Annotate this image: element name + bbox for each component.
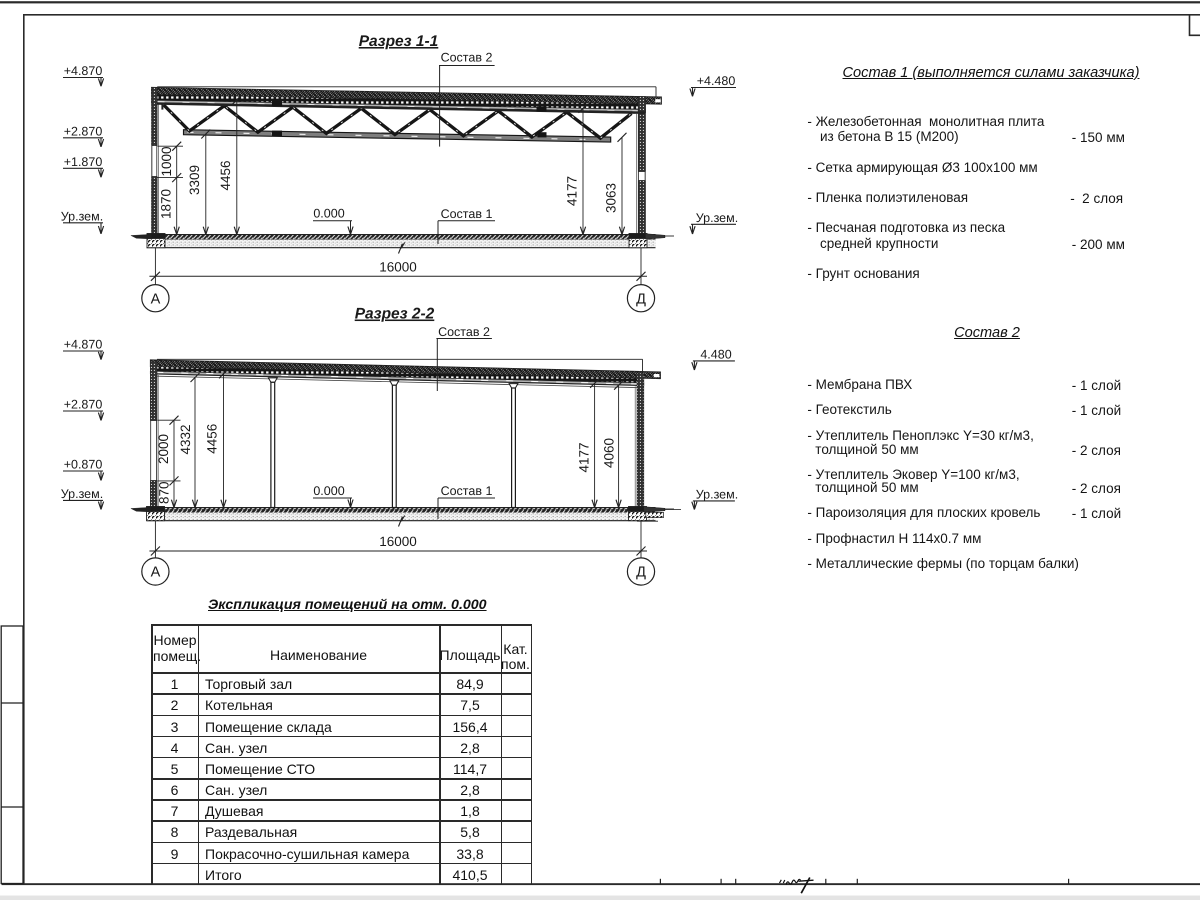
svg-text:16000: 16000 [379, 534, 417, 549]
svg-text:Состав 1: Состав 1 [441, 207, 493, 221]
svg-text:4332: 4332 [178, 424, 193, 454]
svg-text:Д: Д [636, 565, 646, 581]
svg-text:4456: 4456 [218, 160, 233, 190]
svg-text:Ур.зем.: Ур.зем. [696, 211, 738, 225]
svg-text:Ур.зем.: Ур.зем. [61, 209, 103, 223]
svg-text:Ур.зем.: Ур.зем. [696, 487, 738, 501]
svg-text:4177: 4177 [577, 442, 592, 472]
svg-text:Ур.зем.: Ур.зем. [61, 487, 103, 501]
svg-text:А: А [151, 565, 161, 581]
svg-text:+4.870: +4.870 [64, 64, 103, 78]
svg-text:Состав 2: Состав 2 [441, 51, 493, 65]
svg-text:4.480: 4.480 [700, 347, 731, 361]
svg-text:Разрез 1-1: Разрез 1-1 [359, 33, 439, 50]
svg-text:1870: 1870 [158, 189, 173, 219]
svg-text:+0.870: +0.870 [64, 458, 103, 472]
svg-text:2000: 2000 [156, 434, 171, 464]
svg-text:Состав 2: Состав 2 [438, 325, 490, 339]
svg-text:3063: 3063 [603, 183, 618, 213]
svg-text:Разрез 2-2: Разрез 2-2 [355, 306, 435, 323]
svg-text:+1.870: +1.870 [64, 155, 103, 169]
svg-text:+2.870: +2.870 [64, 124, 103, 138]
svg-text:0.000: 0.000 [313, 207, 344, 221]
svg-text:1000: 1000 [159, 146, 174, 176]
svg-text:870: 870 [156, 481, 171, 504]
svg-text:0.000: 0.000 [313, 484, 344, 498]
svg-text:4177: 4177 [565, 176, 580, 206]
svg-text:16000: 16000 [379, 259, 417, 274]
svg-text:4456: 4456 [205, 424, 220, 454]
svg-text:3309: 3309 [187, 165, 202, 195]
svg-text:+4.480: +4.480 [697, 74, 736, 88]
svg-text:А: А [151, 291, 161, 307]
svg-text:Состав 1: Состав 1 [441, 484, 493, 498]
svg-text:Д: Д [636, 291, 646, 307]
svg-text:+4.870: +4.870 [64, 338, 103, 352]
svg-text:+2.870: +2.870 [64, 398, 103, 412]
svg-text:4060: 4060 [601, 438, 616, 468]
